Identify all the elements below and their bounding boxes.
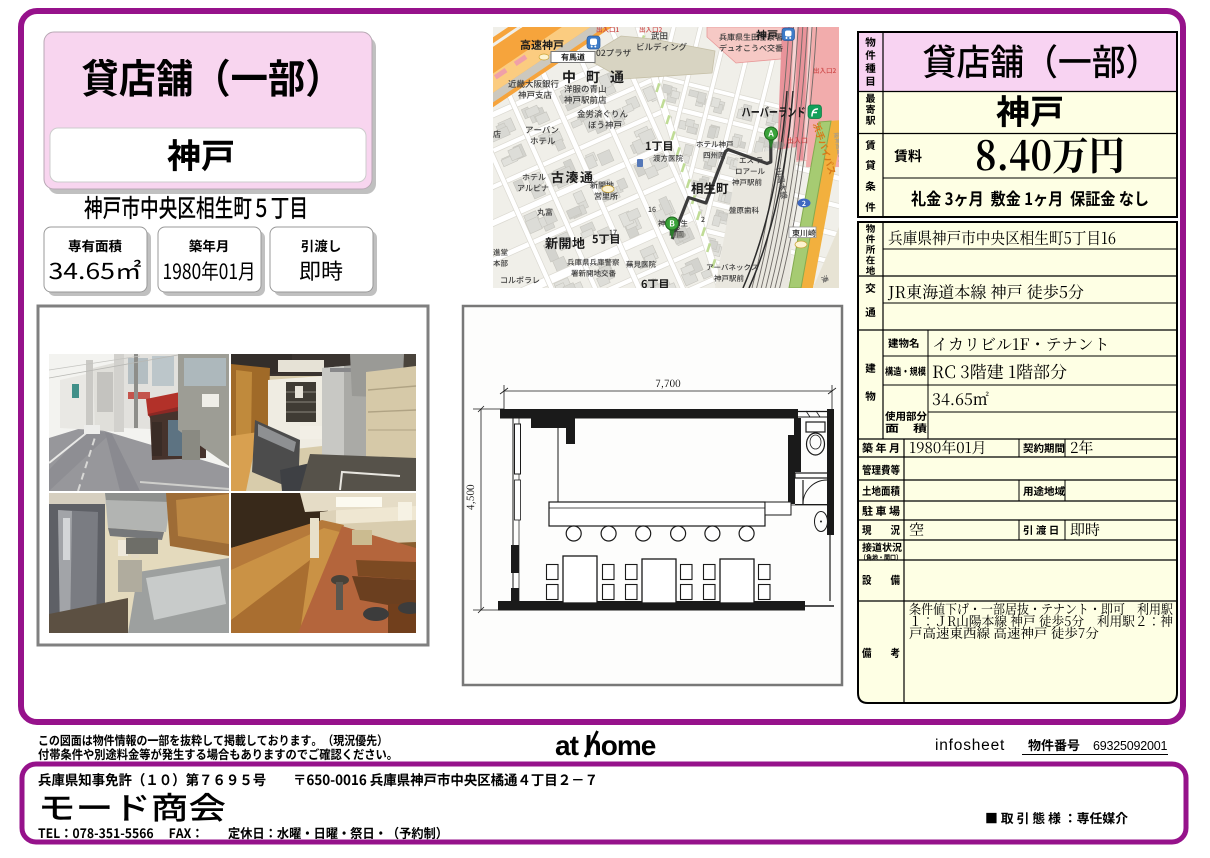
svg-text:69325092001: 69325092001 [1093,739,1168,753]
svg-text:at home: at home [555,730,656,761]
svg-text:infosheet: infosheet [935,737,1005,754]
